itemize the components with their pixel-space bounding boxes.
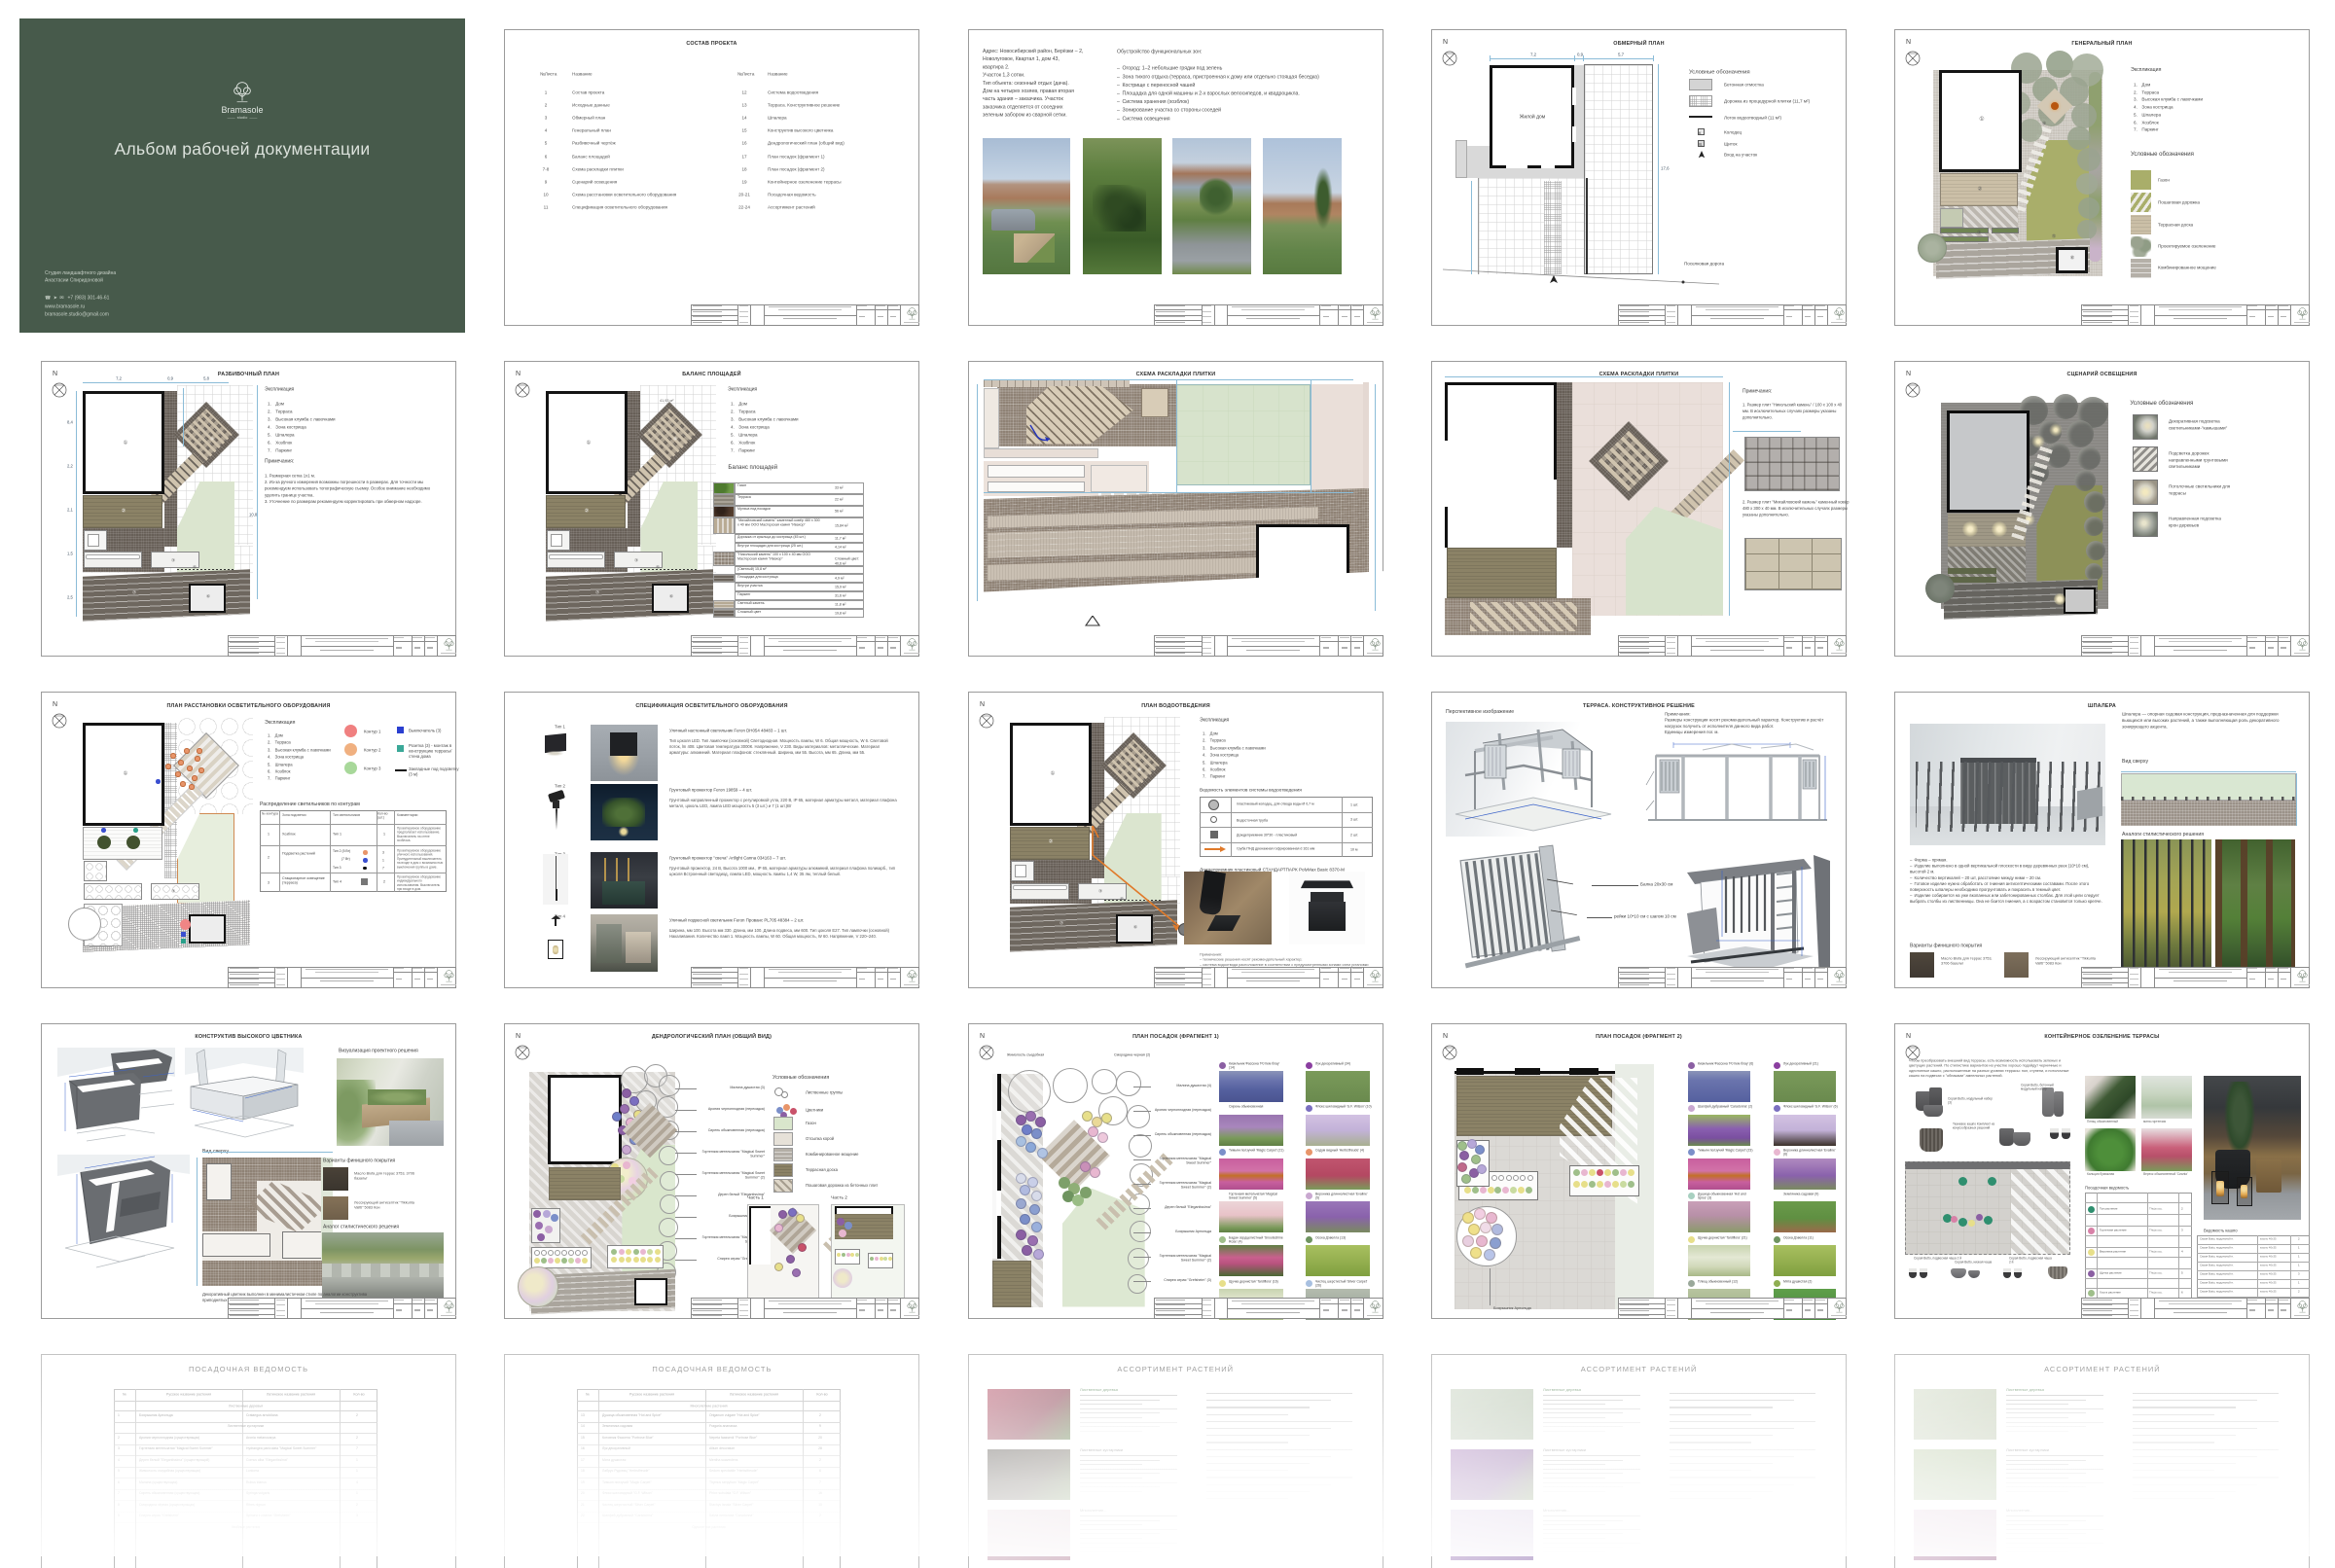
- svg-text:N: N: [1443, 39, 1448, 46]
- svg-text:N: N: [53, 701, 57, 708]
- svg-text:N: N: [516, 371, 521, 377]
- svg-text:N: N: [1906, 1033, 1911, 1040]
- svg-text:N: N: [980, 1033, 985, 1040]
- svg-text:N: N: [980, 701, 985, 708]
- svg-text:N: N: [53, 371, 57, 377]
- svg-text:N: N: [516, 1033, 521, 1040]
- svg-text:N: N: [1906, 39, 1911, 46]
- svg-text:N: N: [1906, 371, 1911, 377]
- svg-text:N: N: [1443, 1033, 1448, 1040]
